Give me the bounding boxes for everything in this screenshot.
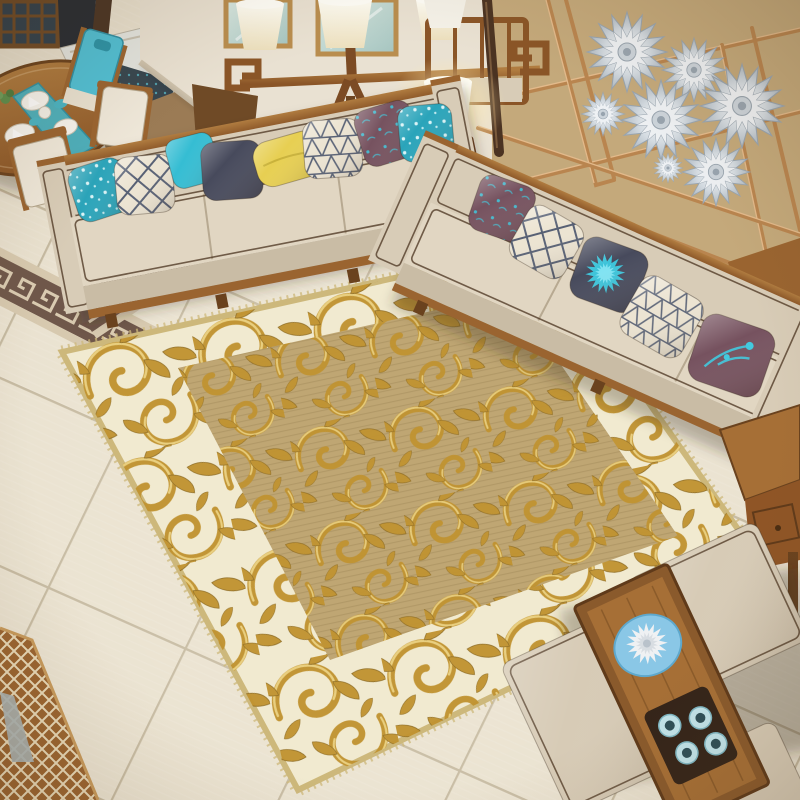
photo-vignette [0,0,800,800]
living-room-photo [0,0,800,800]
scene-canvas [0,0,800,800]
